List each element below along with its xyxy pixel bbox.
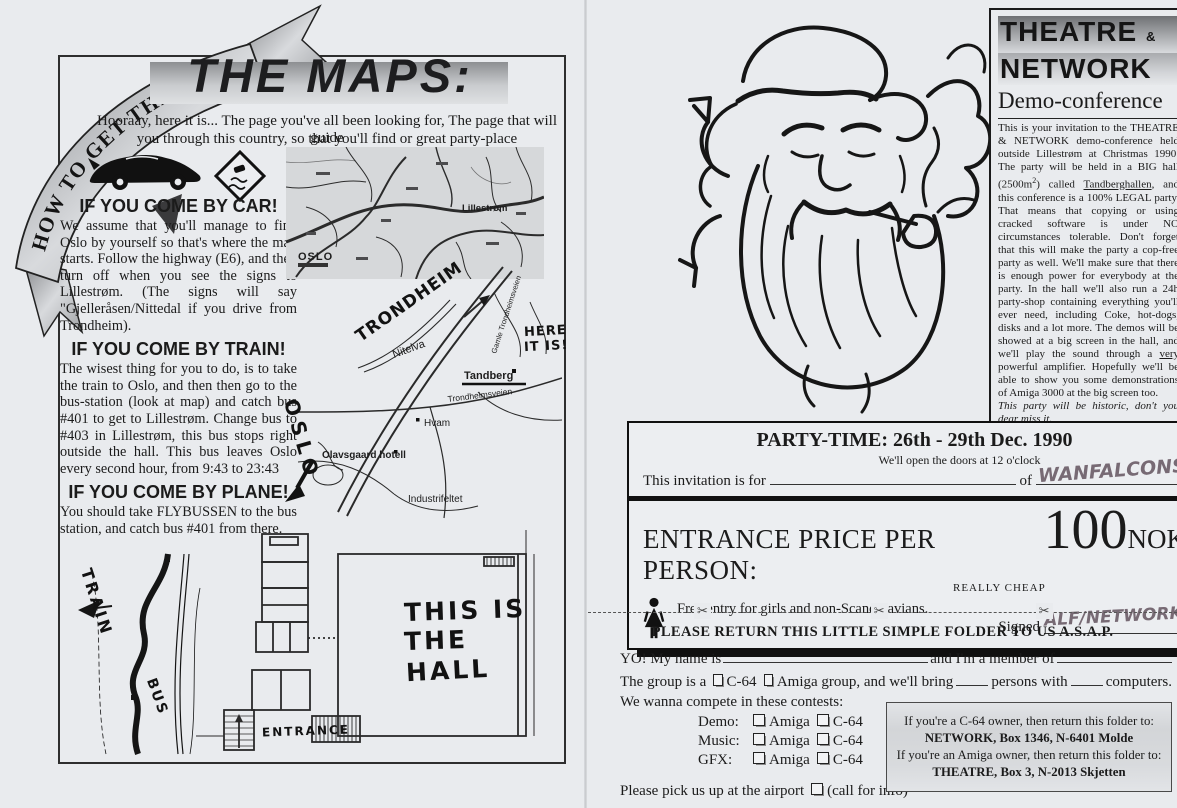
gfx-amiga-checkbox	[753, 752, 765, 764]
airport-checkbox	[811, 783, 823, 795]
here-it-is-line2: IT IS!	[524, 338, 569, 355]
scanned-flyer: HOW TO GET THERE! THE MAPS: Hooraay, her…	[0, 0, 1177, 808]
group-is-label: The group is a	[620, 674, 706, 691]
travel-instructions: IF YOU COME BY CAR! We assume that you'l…	[60, 194, 297, 538]
theatre-network-header: THEATRE & NETWORK Demo-conference This i…	[989, 8, 1177, 445]
intro-line-2: you through this country, so that you'll…	[90, 131, 564, 148]
page-title: THE MAPS:	[138, 48, 522, 103]
train-section-heading: IF YOU COME BY TRAIN!	[60, 339, 297, 360]
ampersand: &	[1146, 29, 1156, 44]
scissors-icon: ✂	[694, 603, 711, 619]
arrive-line: We'll arrive day th Dec. 1990	[620, 803, 1172, 808]
hall-text-line2: THE	[404, 625, 469, 656]
scissors-icon: ✂	[1036, 603, 1053, 619]
title-theatre: THEATRE &	[998, 16, 1177, 53]
amiga-option: Amiga	[769, 733, 810, 750]
cut-here-line: ✂ ✂ ✂	[588, 612, 1177, 613]
form-group-line: The group is a C-64 Amiga group, and we'…	[620, 671, 1172, 691]
trondheimsveien-label: Trondheimsveien	[447, 386, 513, 404]
name-label: YO! My name is	[620, 651, 721, 668]
sketch-map: Nitelva Tandberg Hvam Olavsgaard hotell …	[298, 262, 562, 522]
please-return-note: PLEASE RETURN THIS LITTLE SIMPLE FOLDER …	[588, 624, 1177, 641]
invitation-line: This invitation is for of WANFALCONS	[643, 470, 1177, 490]
hotel-label: Olavsgaard hotell	[322, 450, 406, 461]
demo-amiga-checkbox	[753, 714, 765, 726]
arrive-date-blank	[757, 803, 809, 808]
c64-label: C-64	[727, 674, 757, 691]
nitelva-label: Nitelva	[391, 338, 428, 361]
member-label: and I'm a member of	[930, 651, 1054, 668]
tandberghallen-underlined: Tandberghallen	[1084, 179, 1152, 191]
really-cheap-note: REALLY CHEAP	[953, 582, 1177, 594]
title-network: NETWORK	[998, 53, 1177, 85]
santa-drawing	[608, 6, 993, 426]
price-currency: NOK	[1128, 524, 1177, 555]
paragraph-part: , and this conference is a 100% LEGAL pa…	[998, 179, 1177, 360]
c64-checkbox	[713, 674, 722, 686]
amiga-group-label: Amiga group, and we'll bring	[777, 674, 953, 691]
road-map-lillestrom-label: Lillestrøm	[462, 203, 507, 214]
page-fold	[584, 0, 587, 808]
persons-blank	[956, 671, 988, 686]
invitee-blank-line	[770, 470, 1016, 485]
gfx-c64-checkbox	[817, 752, 829, 764]
amiga-return-line: If you're an Amiga owner, then return th…	[887, 747, 1171, 764]
amiga-checkbox	[764, 674, 773, 686]
contest-label: GFX:	[698, 752, 746, 769]
tandberg-label: Tandberg	[464, 370, 513, 382]
hall-text-line1: THIS IS	[404, 594, 527, 627]
demo-c64-checkbox	[817, 714, 829, 726]
very-underlined: very	[1159, 348, 1177, 360]
printed-road-map: OSLO Lillestrøm	[286, 147, 544, 279]
price-label: ENTRANCE PRICE PER PERSON:	[643, 524, 1036, 586]
form-name-line: YO! My name is and I'm a member of	[620, 648, 1172, 668]
network-address: NETWORK, Box 1346, N-6401 Molde	[887, 730, 1171, 747]
c64-option: C-64	[833, 752, 863, 769]
persons-label: persons with	[991, 674, 1067, 691]
c64-return-line: If you're a C-64 owner, then return this…	[887, 713, 1171, 730]
plane-section-heading: IF YOU COME BY PLANE!	[60, 482, 297, 503]
hall-floor-plan	[196, 520, 560, 760]
subtitle-demo-conference: Demo-conference	[998, 85, 1177, 119]
airport-label: Please pick us up at the airport	[620, 783, 804, 800]
computers-blank	[1071, 671, 1103, 686]
return-address-box: If you're a C-64 owner, then return this…	[886, 702, 1172, 792]
of-label: of	[1020, 473, 1033, 490]
invitee-name-line: WANFALCONS	[1036, 470, 1177, 485]
theatre-address: THEATRE, Box 3, N-2013 Skjetten	[887, 764, 1171, 781]
invitation-paragraph: This is your invitation to the THEATRE &…	[998, 122, 1177, 439]
music-c64-checkbox	[817, 733, 829, 745]
paragraph-part: powerful amplifier. Hopefully we'll be a…	[998, 361, 1177, 399]
industrifeltet-label: Industrifeltet	[408, 494, 463, 505]
paragraph-part: ) called	[1036, 179, 1083, 191]
contest-label: Music:	[698, 733, 746, 750]
price-value: 100	[1044, 505, 1128, 555]
old-road-label: Gamle Trondheimsveien	[489, 275, 523, 355]
c64-option: C-64	[833, 733, 863, 750]
computers-label: computers.	[1106, 674, 1172, 691]
party-title: PARTY-TIME: 26th - 29th Dec. 1990	[643, 429, 1177, 452]
car-section-heading: IF YOU COME BY CAR!	[60, 196, 297, 217]
car-section-body: We assume that you'll manage to find Osl…	[60, 218, 297, 334]
scissors-icon: ✂	[871, 603, 888, 619]
amiga-option: Amiga	[769, 714, 810, 731]
arrive-day-blank	[689, 803, 735, 808]
amiga-option: Amiga	[769, 752, 810, 769]
theatre-text: THEATRE	[1000, 16, 1137, 47]
hvam-label: Hvam	[424, 418, 450, 429]
c64-option: C-64	[833, 714, 863, 731]
name-blank	[723, 648, 928, 663]
invitation-label: This invitation is for	[643, 473, 766, 490]
oslo-arrow-icon	[283, 458, 319, 504]
member-blank	[1057, 648, 1172, 663]
sports-car-icon	[86, 150, 206, 192]
contest-label: Demo:	[698, 714, 746, 731]
hall-text-line3: HALL	[405, 654, 491, 687]
free-entry-note: Free entry for girls and non-Scandinavia…	[677, 601, 928, 618]
entrance-price-line: ENTRANCE PRICE PER PERSON: 100 NOK	[643, 505, 1177, 586]
train-section-body: The wisest thing for you to do, is to ta…	[60, 361, 297, 477]
music-amiga-checkbox	[753, 733, 765, 745]
